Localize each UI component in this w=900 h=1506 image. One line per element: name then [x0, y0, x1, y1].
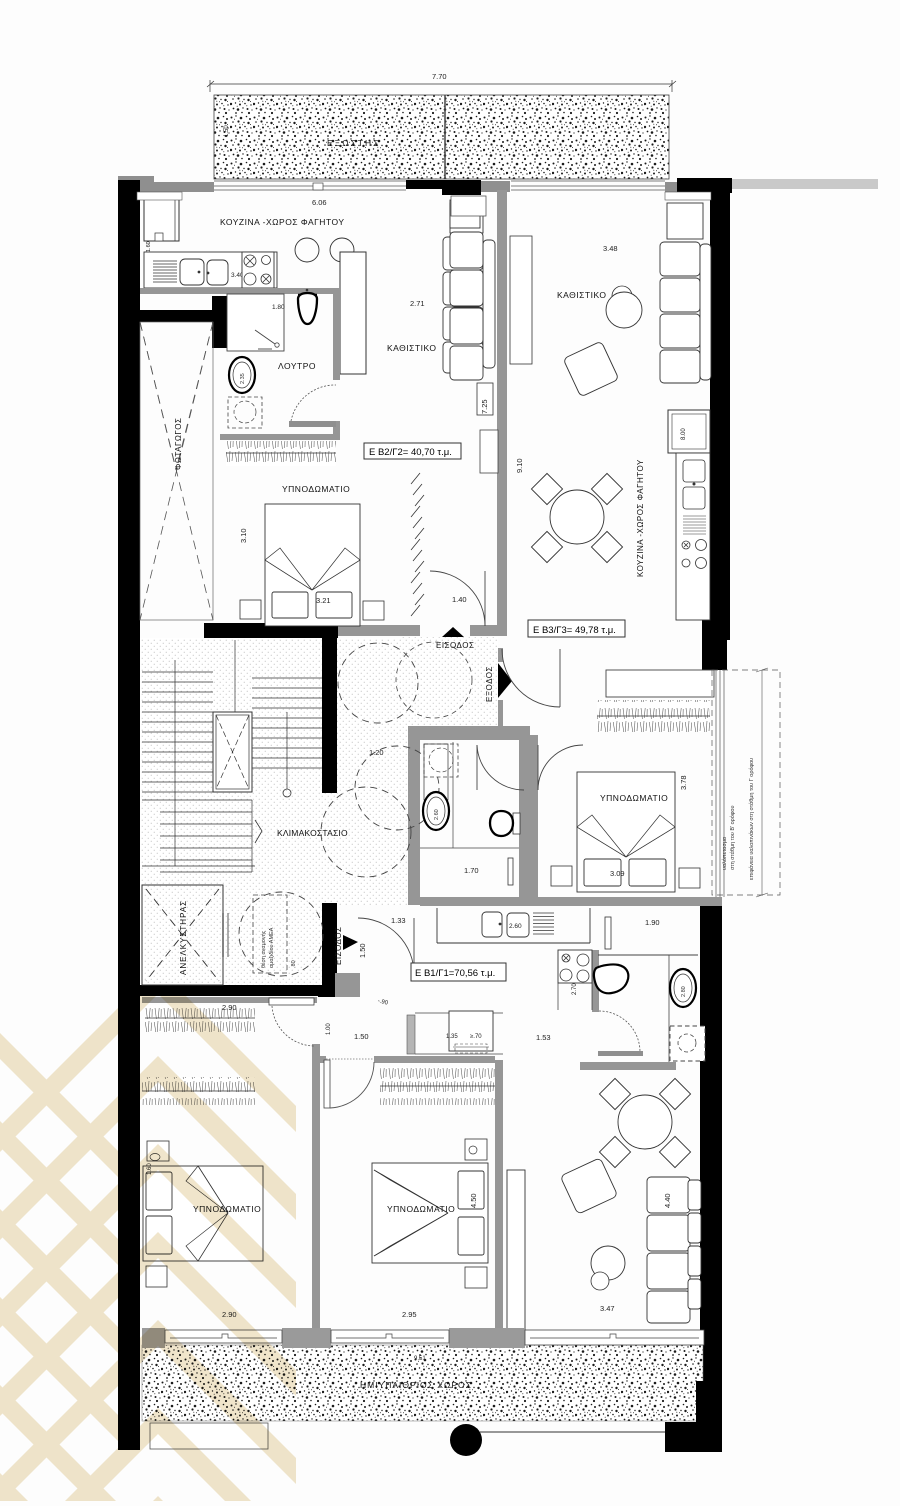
svg-text:3.48: 3.48 [603, 244, 618, 253]
svg-text:≥.70: ≥.70 [470, 1034, 482, 1040]
svg-text:ΚΟΥΖΙΝΑ -ΧΩΡΟΣ ΦΑΓΗΤΟΥ: ΚΟΥΖΙΝΑ -ΧΩΡΟΣ ΦΑΓΗΤΟΥ [220, 217, 345, 227]
svg-text:υαλόπετασμα: υαλόπετασμα [721, 836, 728, 870]
svg-text:2.60: 2.60 [509, 923, 522, 930]
svg-text:2.80: 2.80 [681, 986, 687, 997]
svg-text:2.71: 2.71 [410, 299, 425, 308]
svg-text:ΕΞΟΔΟΣ: ΕΞΟΔΟΣ [485, 666, 494, 702]
svg-text:1.70: 1.70 [464, 866, 479, 875]
svg-text:1.50: 1.50 [358, 943, 367, 958]
svg-text:2.60: 2.60 [434, 809, 440, 820]
svg-text:1.50: 1.50 [354, 1032, 369, 1041]
svg-text:4.50: 4.50 [469, 1193, 478, 1208]
svg-text:1.60: 1.60 [146, 241, 152, 252]
svg-text:1.00: 1.00 [326, 1023, 332, 1035]
svg-text:3.09: 3.09 [610, 869, 625, 878]
svg-text:7.25: 7.25 [480, 399, 489, 414]
svg-text:1.53: 1.53 [536, 1033, 551, 1042]
svg-text:στη στάθμη του Β' ορόφου: στη στάθμη του Β' ορόφου [729, 806, 736, 870]
svg-text:ΚΑΘΙΣΤΙΚΟ: ΚΑΘΙΣΤΙΚΟ [387, 343, 436, 353]
svg-text:ΥΠΝΟΔΩΜΑΤΙΟ: ΥΠΝΟΔΩΜΑΤΙΟ [282, 484, 350, 494]
svg-text:3.47: 3.47 [600, 1304, 615, 1313]
svg-text:ΕΞΩΣΤΗΣ: ΕΞΩΣΤΗΣ [327, 138, 380, 148]
svg-text:Ε Β3/Γ3= 49,78 τ.μ.: Ε Β3/Γ3= 49,78 τ.μ. [533, 625, 616, 636]
svg-text:8.00: 8.00 [681, 428, 687, 440]
svg-text:.80: .80 [291, 960, 297, 968]
svg-text:1.90: 1.90 [645, 918, 660, 927]
svg-text:1.35: 1.35 [446, 1034, 458, 1040]
svg-text:4.40: 4.40 [663, 1193, 672, 1208]
svg-text:ΚΟΥΖΙΝΑ -ΧΩΡΟΣ ΦΑΓΗΤΟΥ: ΚΟΥΖΙΝΑ -ΧΩΡΟΣ ΦΑΓΗΤΟΥ [636, 459, 645, 577]
svg-text:ΚΑΘΙΣΤΙΚΟ: ΚΑΘΙΣΤΙΚΟ [557, 290, 606, 300]
svg-text:6.06: 6.06 [312, 198, 327, 207]
svg-text:9.10: 9.10 [515, 458, 524, 473]
svg-text:επιφάνεια υαλοπινάκων στη στάθ: επιφάνεια υαλοπινάκων στη στάθμη του Γ ο… [748, 758, 755, 880]
svg-text:2.95: 2.95 [402, 1310, 417, 1319]
svg-text:3.10: 3.10 [239, 528, 248, 543]
svg-text:1.40: 1.40 [452, 595, 467, 604]
svg-text:1.50: 1.50 [224, 125, 230, 137]
svg-text:αμαξιδίου ΑΜΕΑ: αμαξιδίου ΑΜΕΑ [269, 927, 275, 968]
svg-text:ΑΝΕΛΚΥΣΤΗΡΑΣ: ΑΝΕΛΚΥΣΤΗΡΑΣ [179, 900, 188, 975]
svg-text:2.70: 2.70 [572, 983, 578, 995]
svg-text:1.33: 1.33 [391, 916, 406, 925]
svg-text:3.78: 3.78 [679, 775, 688, 790]
svg-text:1.80: 1.80 [272, 304, 285, 311]
svg-text:θέση αναμονής: θέση αναμονής [260, 930, 267, 968]
svg-text:ΥΠΝΟΔΩΜΑΤΙΟ: ΥΠΝΟΔΩΜΑΤΙΟ [600, 793, 668, 803]
svg-text:Ε Β2/Γ2= 40,70 τ.μ.: Ε Β2/Γ2= 40,70 τ.μ. [369, 447, 452, 458]
svg-text:2.35: 2.35 [240, 373, 246, 384]
svg-text:9.51: 9.51 [414, 1356, 426, 1362]
svg-text:ΥΠΝΟΔΩΜΑΤΙΟ: ΥΠΝΟΔΩΜΑΤΙΟ [387, 1204, 455, 1214]
svg-text:ΕΙΣΟΔΟΣ: ΕΙΣΟΔΟΣ [334, 927, 343, 965]
svg-text:Ε Β1/Γ1=70,56 τ.μ.: Ε Β1/Γ1=70,56 τ.μ. [415, 968, 495, 979]
svg-text:2.90: 2.90 [222, 1003, 237, 1012]
svg-text:ΗΜΙΥΠΑΙΘΡΙΟΣ ΧΩΡΟΣ: ΗΜΙΥΠΑΙΘΡΙΟΣ ΧΩΡΟΣ [360, 1380, 472, 1390]
svg-text:3.21: 3.21 [316, 596, 331, 605]
svg-text:ΚΛΙΜΑΚΟΣΤΑΣΙΟ: ΚΛΙΜΑΚΟΣΤΑΣΙΟ [277, 828, 348, 838]
svg-text:ΦΩΤΑΓΩΓΟΣ: ΦΩΤΑΓΩΓΟΣ [174, 418, 183, 470]
svg-text:ΛΟΥΤΡΟ: ΛΟΥΤΡΟ [278, 361, 316, 371]
svg-text:7.70: 7.70 [432, 72, 447, 81]
